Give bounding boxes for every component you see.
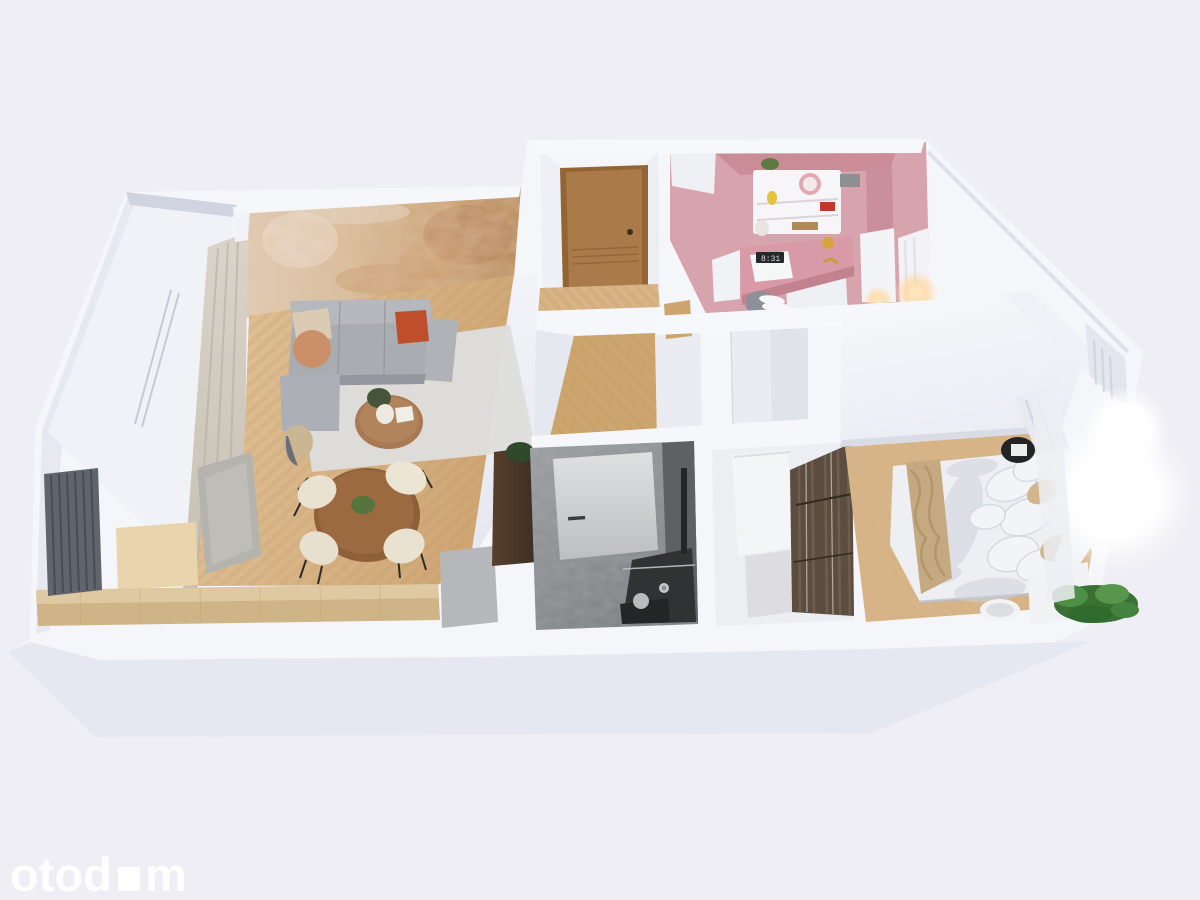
svg-text:otod: otod: [10, 848, 112, 900]
svg-text:m: m: [145, 848, 187, 900]
svg-text:8:31: 8:31: [761, 255, 780, 264]
